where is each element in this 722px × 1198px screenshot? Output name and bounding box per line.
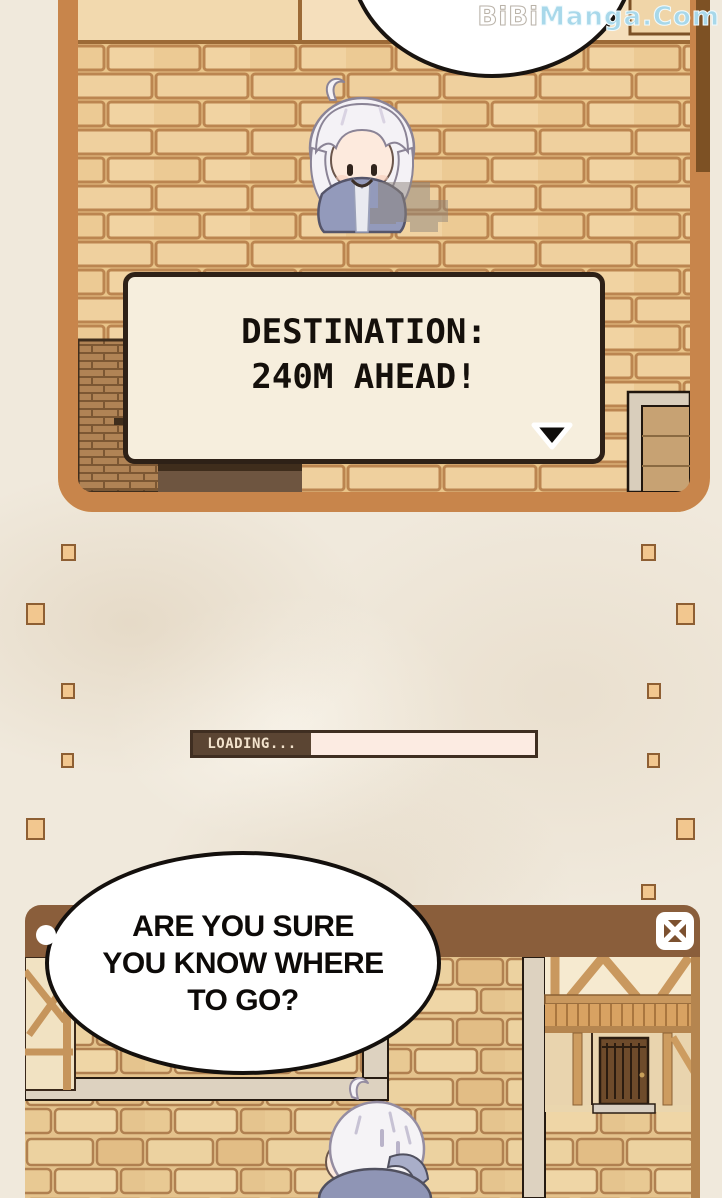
decor-square	[647, 753, 660, 768]
loading-bar: LOADING...	[190, 730, 538, 758]
door	[600, 1038, 648, 1104]
bubble-line-1: ARE YOU SURE	[132, 908, 354, 945]
speech-bubble: ARE YOU SURE YOU KNOW WHERE TO GO?	[45, 851, 441, 1075]
close-icon	[662, 918, 688, 944]
decor-square	[647, 683, 661, 699]
door-threshold	[593, 1104, 655, 1113]
dialog-line-2: 240M AHEAD!	[251, 357, 476, 398]
speech-bubble-dot	[36, 925, 56, 945]
stone-structure	[628, 392, 690, 492]
decor-square	[676, 603, 695, 625]
watermark-brand-white: BiBi	[478, 2, 539, 32]
game-panel-top: DESTINATION: 240M AHEAD!	[58, 0, 710, 512]
decor-square	[641, 544, 656, 561]
decor-square	[61, 753, 74, 768]
dialog-line-1: DESTINATION:	[241, 312, 487, 353]
decor-square	[676, 818, 695, 840]
decor-square	[61, 544, 76, 561]
continue-indicator[interactable]	[530, 421, 574, 451]
character-eye-left	[347, 164, 353, 176]
bubble-line-3: TO GO?	[187, 982, 298, 1019]
dialog-box: DESTINATION: 240M AHEAD!	[123, 272, 605, 464]
loading-track	[311, 733, 535, 755]
decor-square	[641, 884, 656, 900]
loading-label: LOADING...	[193, 733, 311, 755]
down-triangle-icon	[530, 421, 574, 451]
close-button[interactable]	[656, 912, 694, 950]
decor-square	[61, 683, 75, 699]
character-eye-right	[371, 164, 377, 176]
comic-page: DESTINATION: 240M AHEAD! LOADING...	[0, 0, 722, 1198]
decor-square	[26, 818, 45, 840]
bubble-line-2: YOU KNOW WHERE	[102, 945, 383, 982]
watermark-brand-blue: Manga.Com	[539, 2, 720, 32]
site-watermark: BiBiManga.Com	[478, 2, 720, 32]
decor-square	[26, 603, 45, 625]
